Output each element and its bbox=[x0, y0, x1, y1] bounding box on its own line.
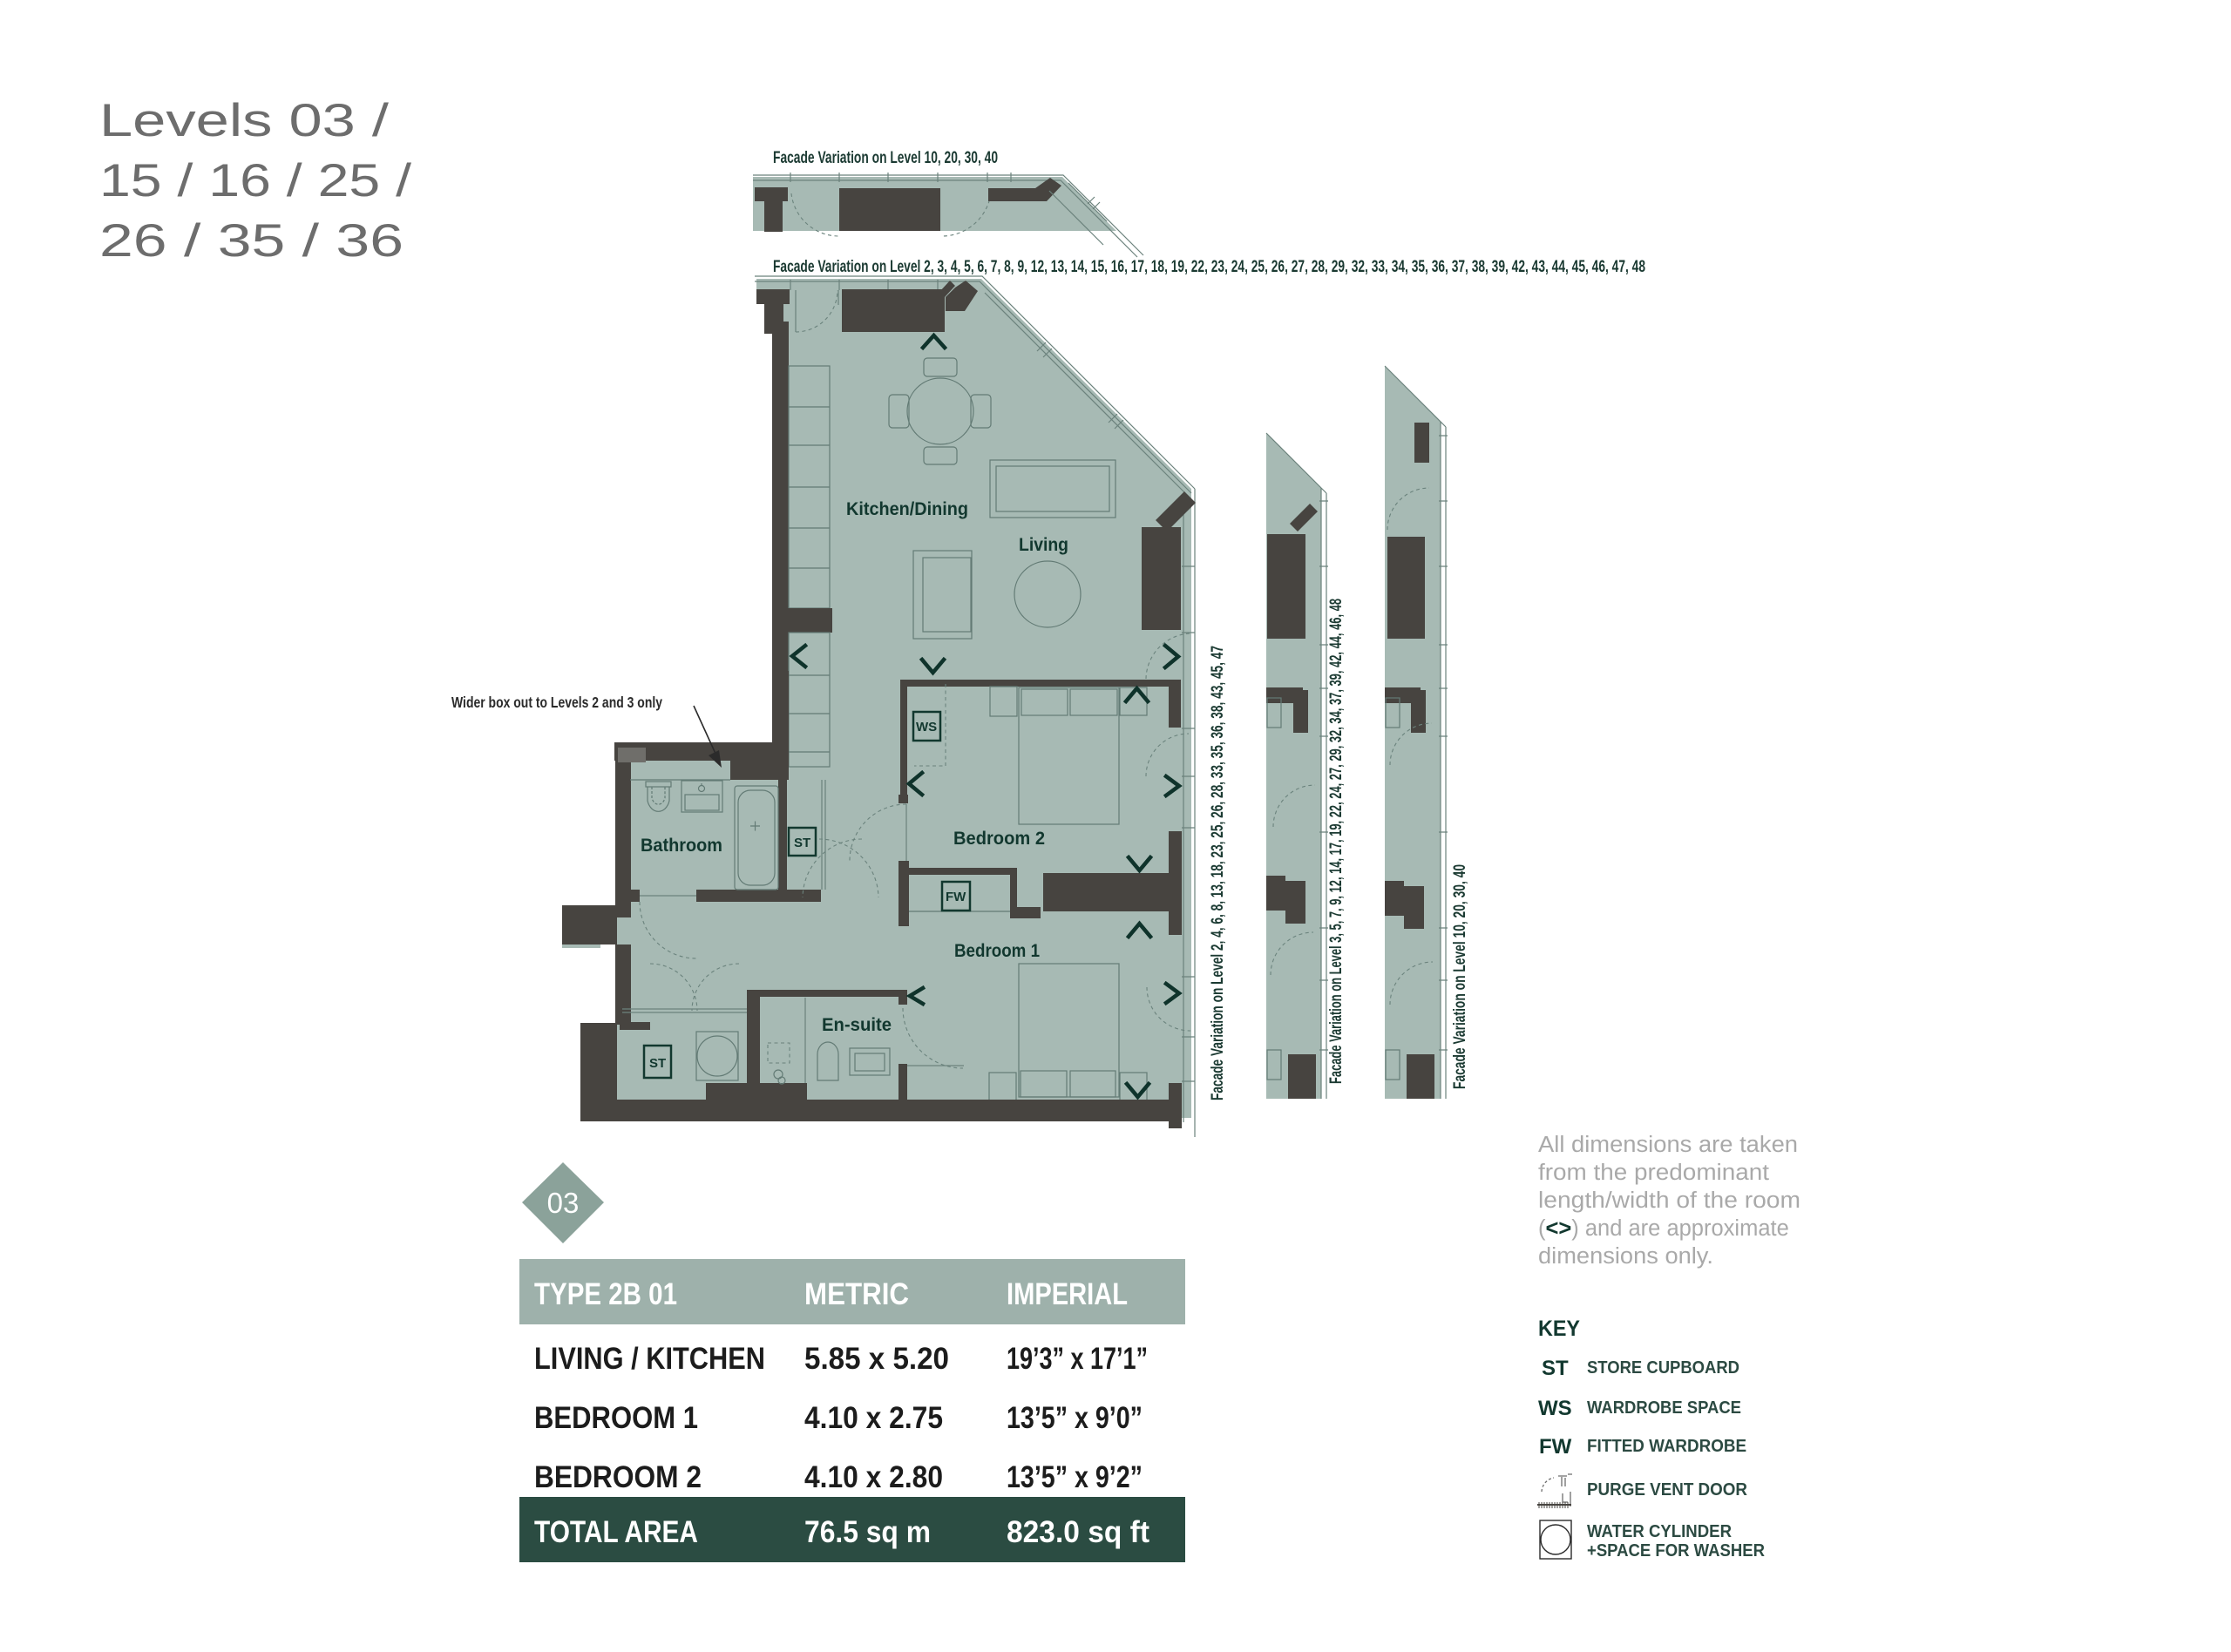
svg-text:Facade Variation on Level 10,: Facade Variation on Level 10, 20, 30, 40 bbox=[773, 148, 998, 167]
svg-text:WATER CYLINDER: WATER CYLINDER bbox=[1587, 1522, 1733, 1541]
svg-text:13’5” x 9’2”: 13’5” x 9’2” bbox=[1007, 1460, 1143, 1494]
svg-text:IMPERIAL: IMPERIAL bbox=[1007, 1277, 1128, 1311]
svg-text:+SPACE FOR WASHER: +SPACE FOR WASHER bbox=[1587, 1541, 1766, 1561]
svg-text:4.10 x 2.80: 4.10 x 2.80 bbox=[804, 1460, 943, 1494]
svg-text:En-suite: En-suite bbox=[822, 1015, 892, 1035]
svg-text:All dimensions are taken: All dimensions are taken bbox=[1538, 1133, 1798, 1157]
svg-text:4.10 x 2.75: 4.10 x 2.75 bbox=[804, 1401, 943, 1435]
svg-text:BEDROOM 2: BEDROOM 2 bbox=[534, 1460, 702, 1494]
svg-text:KEY: KEY bbox=[1538, 1317, 1580, 1341]
svg-text:Living: Living bbox=[1019, 535, 1068, 555]
svg-text:Bathroom: Bathroom bbox=[641, 836, 722, 856]
svg-text:15 / 16 / 25 /: 15 / 16 / 25 / bbox=[99, 155, 411, 206]
svg-text:Facade Variation on Level 10,: Facade Variation on Level 10, 20, 30, 40 bbox=[1450, 864, 1469, 1089]
svg-text:19’3” x 17’1”: 19’3” x 17’1” bbox=[1007, 1342, 1148, 1376]
svg-text:ST: ST bbox=[649, 1056, 666, 1071]
svg-text:Bedroom 2: Bedroom 2 bbox=[953, 829, 1045, 849]
svg-text:Wider box out to Levels 2 and: Wider box out to Levels 2 and 3 only bbox=[451, 694, 662, 711]
svg-text:METRIC: METRIC bbox=[804, 1277, 909, 1311]
svg-text:Kitchen/Dining: Kitchen/Dining bbox=[846, 499, 968, 519]
svg-text:length/width of the room: length/width of the room bbox=[1538, 1188, 1800, 1213]
svg-text:WS: WS bbox=[916, 720, 937, 735]
svg-text:Facade Variation on Level 2, 4: Facade Variation on Level 2, 4, 6, 8, 13… bbox=[1208, 646, 1227, 1100]
svg-text:5.85 x 5.20: 5.85 x 5.20 bbox=[804, 1342, 949, 1376]
svg-text:TOTAL AREA: TOTAL AREA bbox=[534, 1515, 698, 1549]
svg-text:Facade Variation on Level 3, 5: Facade Variation on Level 3, 5, 7, 9, 12… bbox=[1326, 599, 1346, 1084]
svg-text:03: 03 bbox=[547, 1187, 580, 1219]
svg-text:Levels 03 /: Levels 03 / bbox=[99, 95, 389, 146]
svg-text:WARDROBE SPACE: WARDROBE SPACE bbox=[1587, 1398, 1741, 1418]
svg-text:13’5” x 9’0”: 13’5” x 9’0” bbox=[1007, 1401, 1143, 1435]
svg-text:ST: ST bbox=[1542, 1357, 1569, 1380]
svg-text:823.0 sq ft: 823.0 sq ft bbox=[1007, 1515, 1149, 1549]
svg-text:STORE CUPBOARD: STORE CUPBOARD bbox=[1587, 1358, 1739, 1378]
svg-text:WS: WS bbox=[1538, 1397, 1572, 1420]
svg-text:dimensions only.: dimensions only. bbox=[1538, 1244, 1713, 1269]
svg-text:Bedroom 1: Bedroom 1 bbox=[954, 941, 1040, 961]
svg-text:BEDROOM 1: BEDROOM 1 bbox=[534, 1401, 698, 1435]
svg-text:from the predominant: from the predominant bbox=[1538, 1161, 1769, 1185]
svg-text:LIVING / KITCHEN: LIVING / KITCHEN bbox=[534, 1342, 765, 1376]
svg-text:76.5 sq m: 76.5 sq m bbox=[804, 1515, 931, 1549]
svg-text:Facade Variation on Level 2, 3: Facade Variation on Level 2, 3, 4, 5, 6,… bbox=[773, 257, 1645, 276]
svg-text:26 / 35 / 36: 26 / 35 / 36 bbox=[99, 215, 403, 267]
svg-text:ST: ST bbox=[794, 836, 810, 850]
svg-text:FW: FW bbox=[946, 890, 966, 904]
svg-text:TYPE 2B 01: TYPE 2B 01 bbox=[534, 1277, 677, 1311]
svg-text:(<>) and are approximate: (<>) and are approximate bbox=[1538, 1216, 1789, 1241]
svg-text:FW: FW bbox=[1539, 1435, 1572, 1459]
svg-text:PURGE VENT DOOR: PURGE VENT DOOR bbox=[1587, 1480, 1748, 1500]
svg-text:FITTED WARDROBE: FITTED WARDROBE bbox=[1587, 1437, 1746, 1456]
